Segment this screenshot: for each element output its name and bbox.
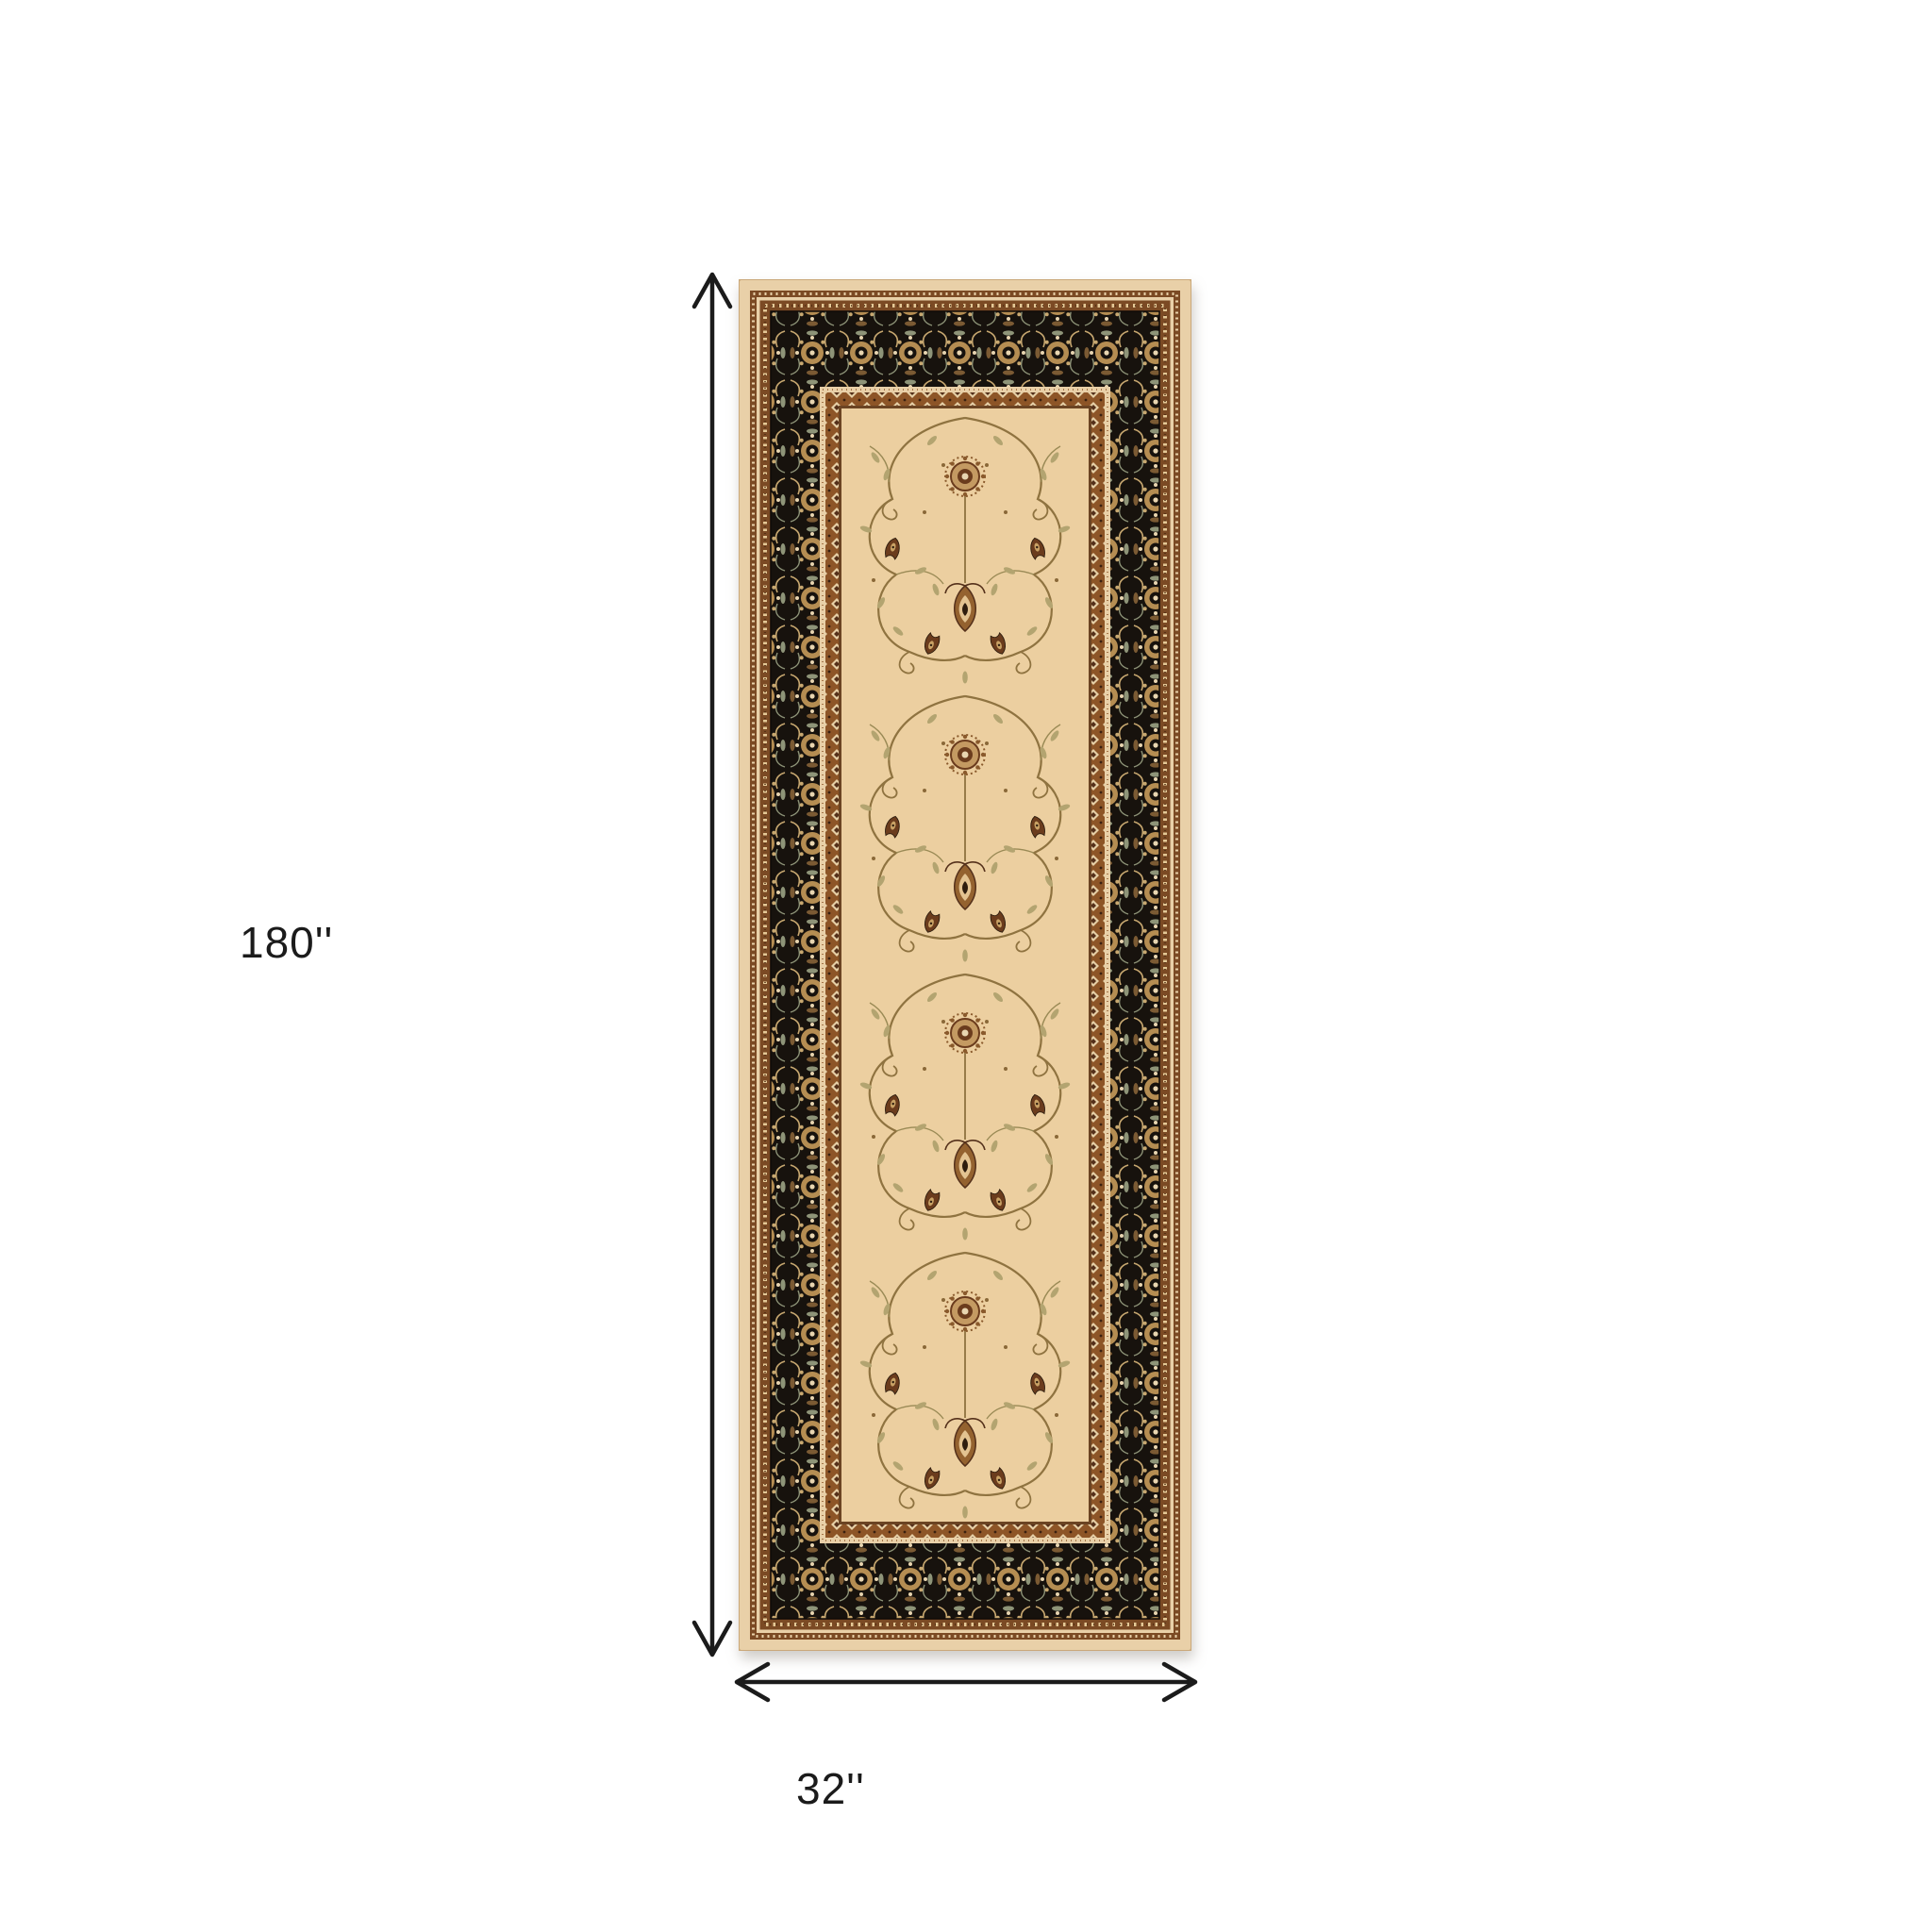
width-dimension-arrow-icon	[737, 1664, 1195, 1700]
rug-image	[739, 279, 1191, 1651]
diagram-canvas: 180'' 32''	[0, 0, 1932, 1932]
height-dimension-label: 180''	[240, 921, 333, 964]
height-dimension-arrow-icon	[694, 275, 730, 1655]
rug-field	[841, 408, 1089, 1522]
width-dimension-label: 32''	[796, 1767, 865, 1810]
